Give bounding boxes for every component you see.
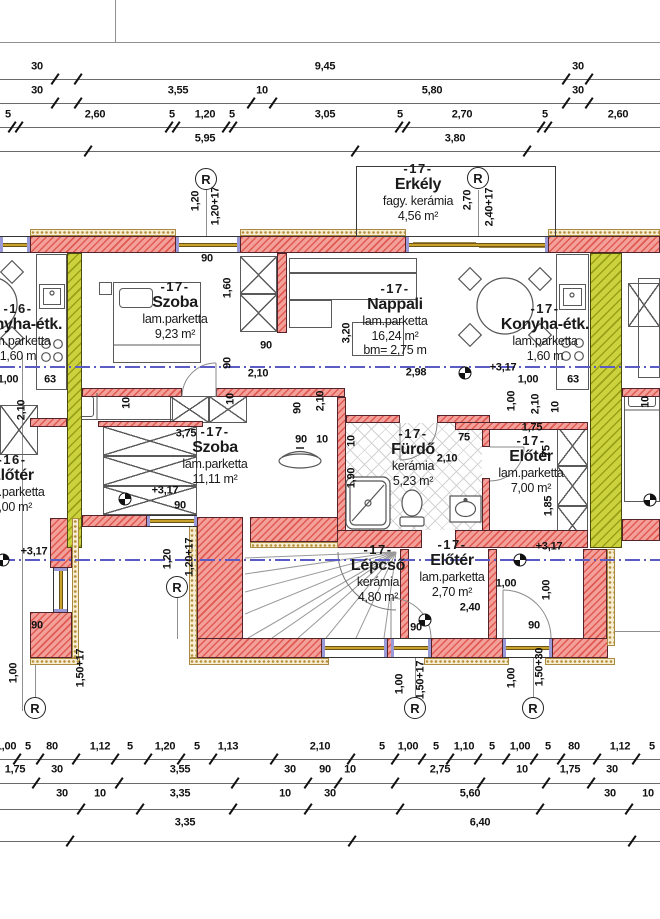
chain-dim-label: 5 [169, 110, 175, 121]
room-label-nappali: -17-Nappalilam.parketta16,24 m²bm= 2,75 … [362, 281, 427, 358]
dimension-chain-line [0, 103, 660, 104]
room-label-line: Előtér [419, 552, 484, 570]
dimension-chain-line [0, 841, 660, 842]
dim-label: 1,75 [522, 423, 543, 434]
dim-label: 1,50+30 [535, 648, 546, 687]
chain-dim-label: 6,40 [470, 818, 491, 829]
room-label-line: -16- [0, 452, 45, 467]
room-label-eloter-bal: -16-Előtérlam.parketta7,00 m² [0, 452, 45, 514]
room-label-line: -17- [383, 161, 453, 176]
chain-dim-label: 10 [94, 789, 106, 800]
room-label-line: Erkély [383, 176, 453, 194]
room-label-eloter-jobb: -17-Előtérlam.parketta7,00 m² [498, 433, 563, 495]
chain-dim-label: 30 [31, 62, 43, 73]
room-label-line: -17- [362, 281, 427, 296]
chain-dim-label: 30 [324, 789, 336, 800]
dim-label: 90 [174, 501, 186, 512]
dim-label: +3,17 [21, 547, 48, 558]
chain-dim-label: 5,95 [195, 134, 216, 145]
chain-dim-label: 1,10 [454, 742, 475, 753]
dim-label: 2,70 [463, 190, 474, 211]
chain-dim-label: 1,00 [510, 742, 531, 753]
dim-label: 1,00 [518, 375, 539, 386]
room-label-line: lam.parketta [142, 312, 207, 327]
chain-dim-label: 5 [649, 742, 655, 753]
room-label-line: Nappali [362, 296, 427, 314]
chain-dim-label: 5 [194, 742, 200, 753]
dim-label: 1,50+17 [76, 649, 87, 688]
floorplan-canvas: 309,4530303,55105,803052,6051,2053,0552,… [0, 0, 660, 919]
washbasin [450, 496, 481, 522]
dim-label: 63 [567, 375, 579, 386]
chain-dim-label: 5 [127, 742, 133, 753]
room-label-line: Szoba [142, 294, 207, 312]
dim-label: 10 [551, 401, 562, 413]
dim-label: +3,17 [152, 486, 179, 497]
dim-label: 90 [295, 435, 307, 446]
dim-label: 1,00 [507, 391, 518, 412]
chain-dim-label: 10 [279, 789, 291, 800]
room-label-furdo: -17-Fürdőkerámia5,23 m² [391, 426, 435, 488]
reference-marker: R [404, 697, 426, 719]
dim-label: 2,10 [248, 369, 269, 380]
dim-label: 90 [201, 254, 213, 265]
chain-dim-label: 5 [397, 110, 403, 121]
dim-label: 3,20 [342, 323, 353, 344]
chain-dim-label: 5,80 [422, 86, 443, 97]
room-label-line: Lépcső [351, 557, 405, 575]
dim-label: 1,20+17 [185, 538, 196, 577]
dim-label: 1,00 [0, 375, 18, 386]
chain-dim-label: 3,35 [175, 818, 196, 829]
chain-dim-label: 5 [229, 110, 235, 121]
room-label-konyha-etk-bal: -16-Konyha-étk.lam.parketta1,60 m [0, 301, 62, 363]
section-line [0, 559, 660, 561]
dim-label: 63 [44, 375, 56, 386]
chain-dim-label: 1,12 [90, 742, 111, 753]
room-label-line: -17- [182, 424, 247, 439]
chain-dim-label: 10 [256, 86, 268, 97]
level-marker [419, 614, 432, 627]
reference-marker: R [24, 697, 46, 719]
dimension-chain-line [0, 79, 660, 80]
chain-dim-label: 5,60 [460, 789, 481, 800]
reference-marker: R [166, 576, 188, 598]
chain-dim-label: 5 [379, 742, 385, 753]
chain-dim-label: 1,00 [0, 742, 16, 753]
dim-label: 2,10 [531, 394, 542, 415]
chain-dim-label: 10 [516, 765, 528, 776]
room-label-line: Konyha-étk. [0, 316, 62, 334]
room-label-line: -17- [351, 542, 405, 557]
chain-dim-label: 80 [568, 742, 580, 753]
room-label-szoba-felso: -17-Szobalam.parketta9,23 m² [142, 279, 207, 341]
dim-label: 1,00 [395, 674, 406, 695]
dimension-chain-line [0, 127, 660, 128]
chain-dim-label: 5 [5, 110, 11, 121]
chain-dim-label: 30 [31, 86, 43, 97]
dim-label: 1,00 [507, 668, 518, 689]
chain-dim-label: 3,35 [170, 789, 191, 800]
room-label-szoba-also: -17-Szobalam.parketta11,11 m² [182, 424, 247, 486]
room-label-line: 7,00 m² [0, 500, 45, 515]
dim-label: 90 [223, 357, 234, 369]
chain-dim-label: 2,70 [452, 110, 473, 121]
dim-label: 75 [458, 433, 470, 444]
dim-label: 1,20 [191, 191, 202, 212]
chain-dim-label: 3,80 [445, 134, 466, 145]
room-label-line: Fürdő [391, 441, 435, 459]
chain-dim-label: 30 [51, 765, 63, 776]
chain-dim-label: 30 [606, 765, 618, 776]
room-label-line: 7,00 m² [498, 481, 563, 496]
dim-label: 1,00 [496, 579, 517, 590]
level-marker [459, 367, 472, 380]
dim-label: 2,40 [460, 603, 481, 614]
chain-dim-label: 10 [344, 765, 356, 776]
room-label-line: -17- [142, 279, 207, 294]
dim-label: +3,17 [490, 363, 517, 374]
room-label-konyha-etk-jobb: -17-Konyha-étk.lam.parketta1,60 m [501, 301, 589, 363]
room-label-line: 2,70 m² [419, 585, 484, 600]
dim-label: 2,40+17 [485, 188, 496, 227]
dim-label: 90 [260, 341, 272, 352]
chain-dim-label: 3,55 [168, 86, 189, 97]
chain-dim-label: 30 [604, 789, 616, 800]
chain-dim-label: 1,20 [195, 110, 216, 121]
room-label-line: lam.parketta [498, 466, 563, 481]
chain-dim-label: 10 [642, 789, 654, 800]
dim-label: 2,98 [406, 368, 427, 379]
chain-dim-label: 3,05 [315, 110, 336, 121]
dim-label: 10 [226, 393, 237, 405]
dim-label: 2,10 [17, 400, 28, 421]
room-label-line: Szoba [182, 439, 247, 457]
room-label-line: lam.parketta [362, 314, 427, 329]
room-label-line: Előtér [498, 448, 563, 466]
room-label-line: lam.parketta [0, 334, 62, 349]
dim-label: 10 [641, 396, 652, 408]
room-label-line: lam.parketta [0, 485, 45, 500]
dim-label: 1,00 [542, 580, 553, 601]
dim-label: 1,60 [223, 278, 234, 299]
pot-symbol [279, 448, 321, 468]
toilet [400, 490, 424, 526]
room-label-eloter-kozep: -17-Előtérlam.parketta2,70 m² [419, 537, 484, 599]
chain-dim-label: 80 [46, 742, 58, 753]
chain-dim-label: 2,75 [430, 765, 451, 776]
chain-dim-label: 5 [25, 742, 31, 753]
chain-dim-label: 1,20 [155, 742, 176, 753]
dim-label: 90 [528, 621, 540, 632]
room-label-line: -17- [391, 426, 435, 441]
chain-dim-label: 1,12 [610, 742, 631, 753]
room-label-line: lam.parketta [419, 570, 484, 585]
level-marker [514, 554, 527, 567]
room-label-line: fagy. kerámia [383, 194, 453, 209]
dim-label: 1,50+17 [416, 661, 427, 700]
chain-dim-label: 9,45 [315, 62, 336, 73]
dim-label: +3,17 [536, 542, 563, 553]
chain-dim-label: 30 [284, 765, 296, 776]
chain-dim-label: 30 [56, 789, 68, 800]
dimension-chain-line [0, 783, 660, 784]
reference-marker: R [195, 168, 217, 190]
dim-label: 1,20+17 [211, 187, 222, 226]
room-label-line: -16- [0, 301, 62, 316]
room-label-line: 16,24 m² [362, 329, 427, 344]
dim-label: 1,85 [544, 496, 555, 517]
dim-label: 1,20 [163, 549, 174, 570]
chain-dim-label: 1,75 [5, 765, 26, 776]
room-label-line: 1,60 m [0, 349, 62, 364]
room-label-line: 5,23 m² [391, 474, 435, 489]
room-label-line: lam.parketta [501, 334, 589, 349]
dim-label: 90 [31, 621, 43, 632]
dim-label: 10 [316, 435, 328, 446]
room-label-line: Előtér [0, 467, 45, 485]
room-label-line: -17- [419, 537, 484, 552]
chain-dim-label: 90 [319, 765, 331, 776]
chain-dim-label: 1,75 [560, 765, 581, 776]
dimension-chain-line [0, 151, 660, 152]
chain-dim-label: 5 [542, 110, 548, 121]
chain-dim-label: 5 [433, 742, 439, 753]
dim-label: 1,00 [9, 663, 20, 684]
reference-marker: R [467, 167, 489, 189]
chain-dim-label: 30 [572, 62, 584, 73]
dim-label: 90 [293, 402, 304, 414]
chain-dim-label: 2,60 [608, 110, 629, 121]
room-label-line: 9,23 m² [142, 327, 207, 342]
chain-dim-label: 3,55 [170, 765, 191, 776]
chain-dim-label: 1,13 [218, 742, 239, 753]
room-label-erkely: -17-Erkélyfagy. kerámia4,56 m² [383, 161, 453, 223]
room-label-line: Konyha-étk. [501, 316, 589, 334]
chain-dim-label: 1,00 [398, 742, 419, 753]
room-label-line: kerámia [351, 575, 405, 590]
dim-label: 10 [122, 397, 133, 409]
room-label-line: 4,80 m² [351, 590, 405, 605]
level-marker [119, 493, 132, 506]
chain-dim-label: 2,10 [310, 742, 331, 753]
dim-label: 10 [347, 435, 358, 447]
room-label-line: kerámia [391, 459, 435, 474]
dim-label: 1,90 [347, 468, 358, 489]
chain-dim-label: 5 [545, 742, 551, 753]
room-label-line: -17- [498, 433, 563, 448]
room-label-line: 1,60 m [501, 349, 589, 364]
section-line [0, 366, 660, 368]
room-label-line: 4,56 m² [383, 209, 453, 224]
room-label-line: -17- [501, 301, 589, 316]
reference-marker: R [522, 697, 544, 719]
chain-dim-label: 30 [572, 86, 584, 97]
dimension-chain-line [0, 809, 660, 810]
dim-label: 2,10 [437, 454, 458, 465]
dim-label: 2,10 [316, 391, 327, 412]
room-label-lepcso: -17-Lépcsőkerámia4,80 m² [351, 542, 405, 604]
room-label-line: bm= 2,75 m [362, 343, 427, 358]
chain-dim-label: 2,60 [85, 110, 106, 121]
chain-dim-label: 5 [489, 742, 495, 753]
room-label-line: lam.parketta [182, 457, 247, 472]
level-marker [644, 494, 657, 507]
room-label-line: 11,11 m² [182, 472, 247, 487]
